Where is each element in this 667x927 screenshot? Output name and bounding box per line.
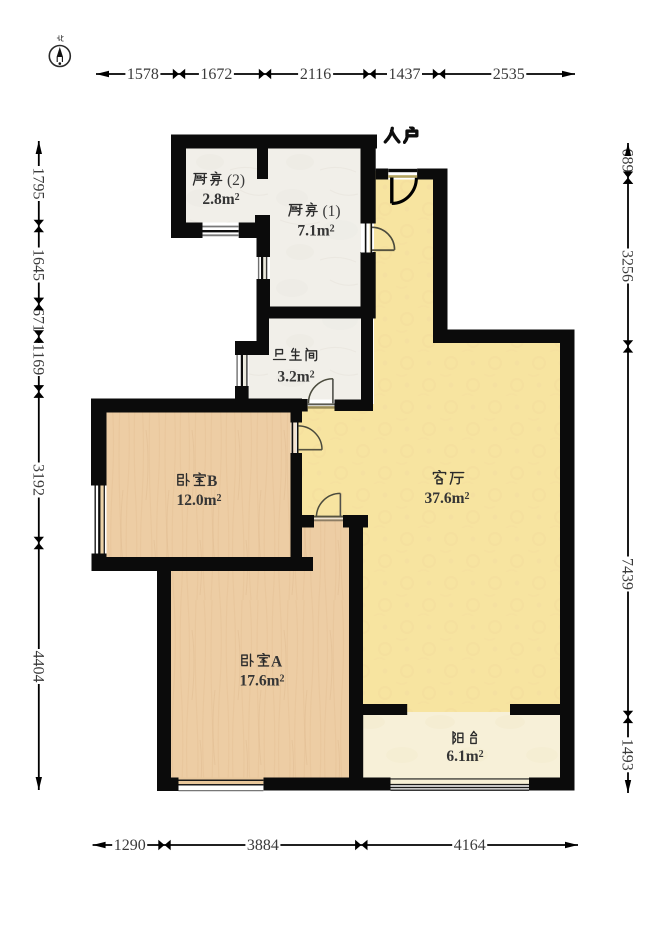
svg-text:1578: 1578: [127, 66, 159, 83]
svg-text:7439: 7439: [619, 558, 636, 590]
svg-text:3192: 3192: [29, 464, 46, 496]
svg-text:1645: 1645: [29, 249, 46, 281]
svg-text:671: 671: [29, 308, 46, 332]
svg-text:7.1m2: 7.1m2: [297, 223, 334, 240]
svg-text:3.2m2: 3.2m2: [277, 369, 314, 386]
svg-text:3256: 3256: [619, 250, 636, 282]
svg-text:(2): (2): [227, 172, 245, 189]
svg-text:(1): (1): [323, 203, 341, 220]
svg-text:4164: 4164: [454, 837, 486, 854]
svg-text:2116: 2116: [300, 66, 331, 83]
svg-text:2.8m2: 2.8m2: [202, 191, 239, 208]
svg-text:1493: 1493: [619, 739, 636, 771]
svg-text:1672: 1672: [200, 66, 232, 83]
svg-text:37.6m2: 37.6m2: [424, 490, 469, 507]
svg-text:1795: 1795: [29, 168, 46, 200]
svg-text:1290: 1290: [114, 837, 146, 854]
svg-text:1437: 1437: [389, 66, 421, 83]
svg-text:4404: 4404: [29, 651, 46, 683]
svg-text:2535: 2535: [493, 66, 525, 83]
svg-text:3884: 3884: [247, 837, 279, 854]
svg-text:B: B: [207, 473, 217, 490]
svg-text:12.0m2: 12.0m2: [176, 492, 221, 509]
svg-text:6.1m2: 6.1m2: [446, 748, 483, 765]
svg-text:1169: 1169: [29, 344, 46, 375]
svg-text:A: A: [271, 654, 283, 671]
svg-text:17.6m2: 17.6m2: [239, 673, 284, 690]
